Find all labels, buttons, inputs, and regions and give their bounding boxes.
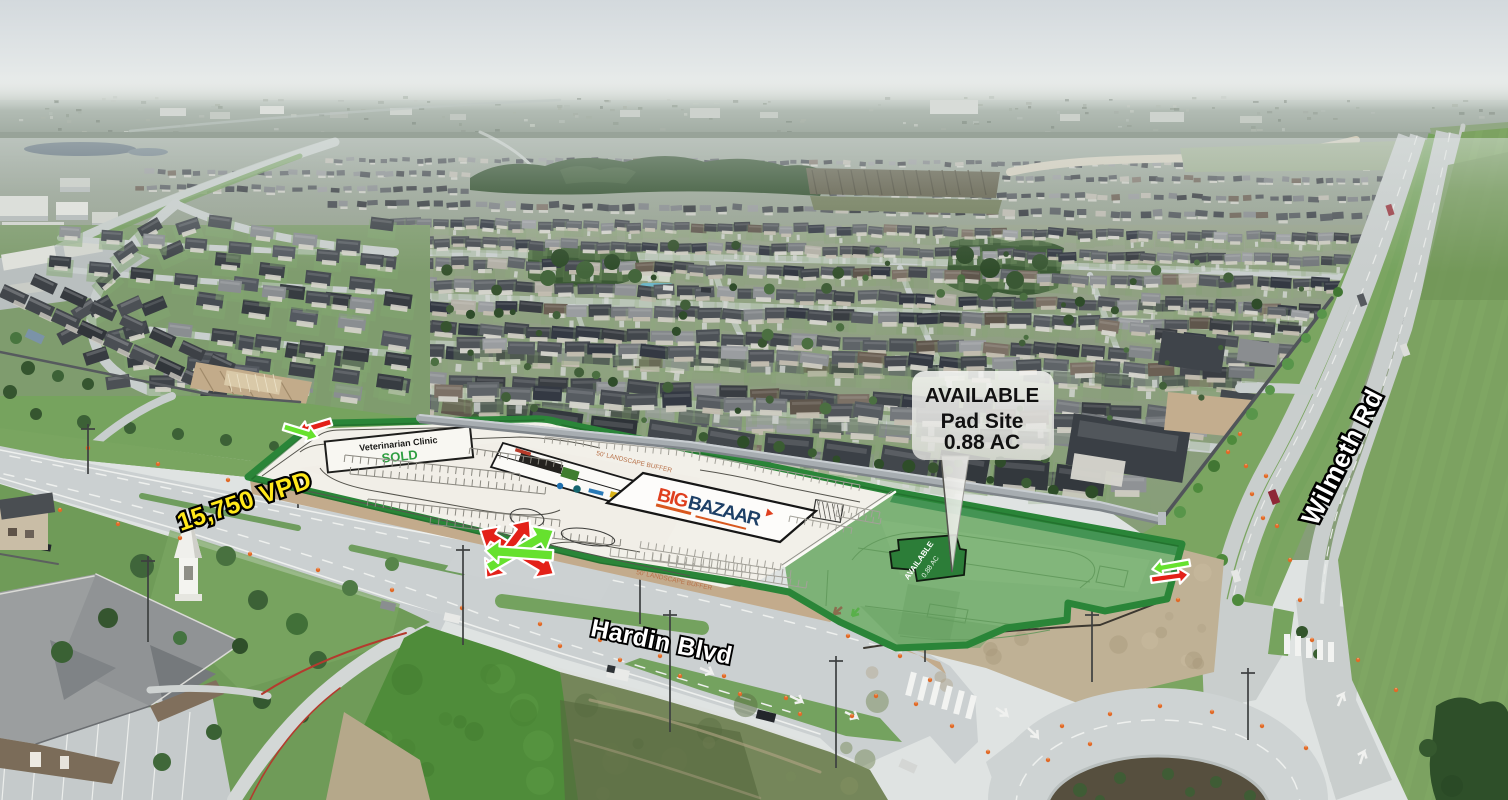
- svg-text:0.88 AC: 0.88 AC: [944, 431, 1020, 454]
- svg-text:Pad Site: Pad Site: [941, 410, 1024, 433]
- svg-text:AVAILABLE: AVAILABLE: [925, 384, 1039, 407]
